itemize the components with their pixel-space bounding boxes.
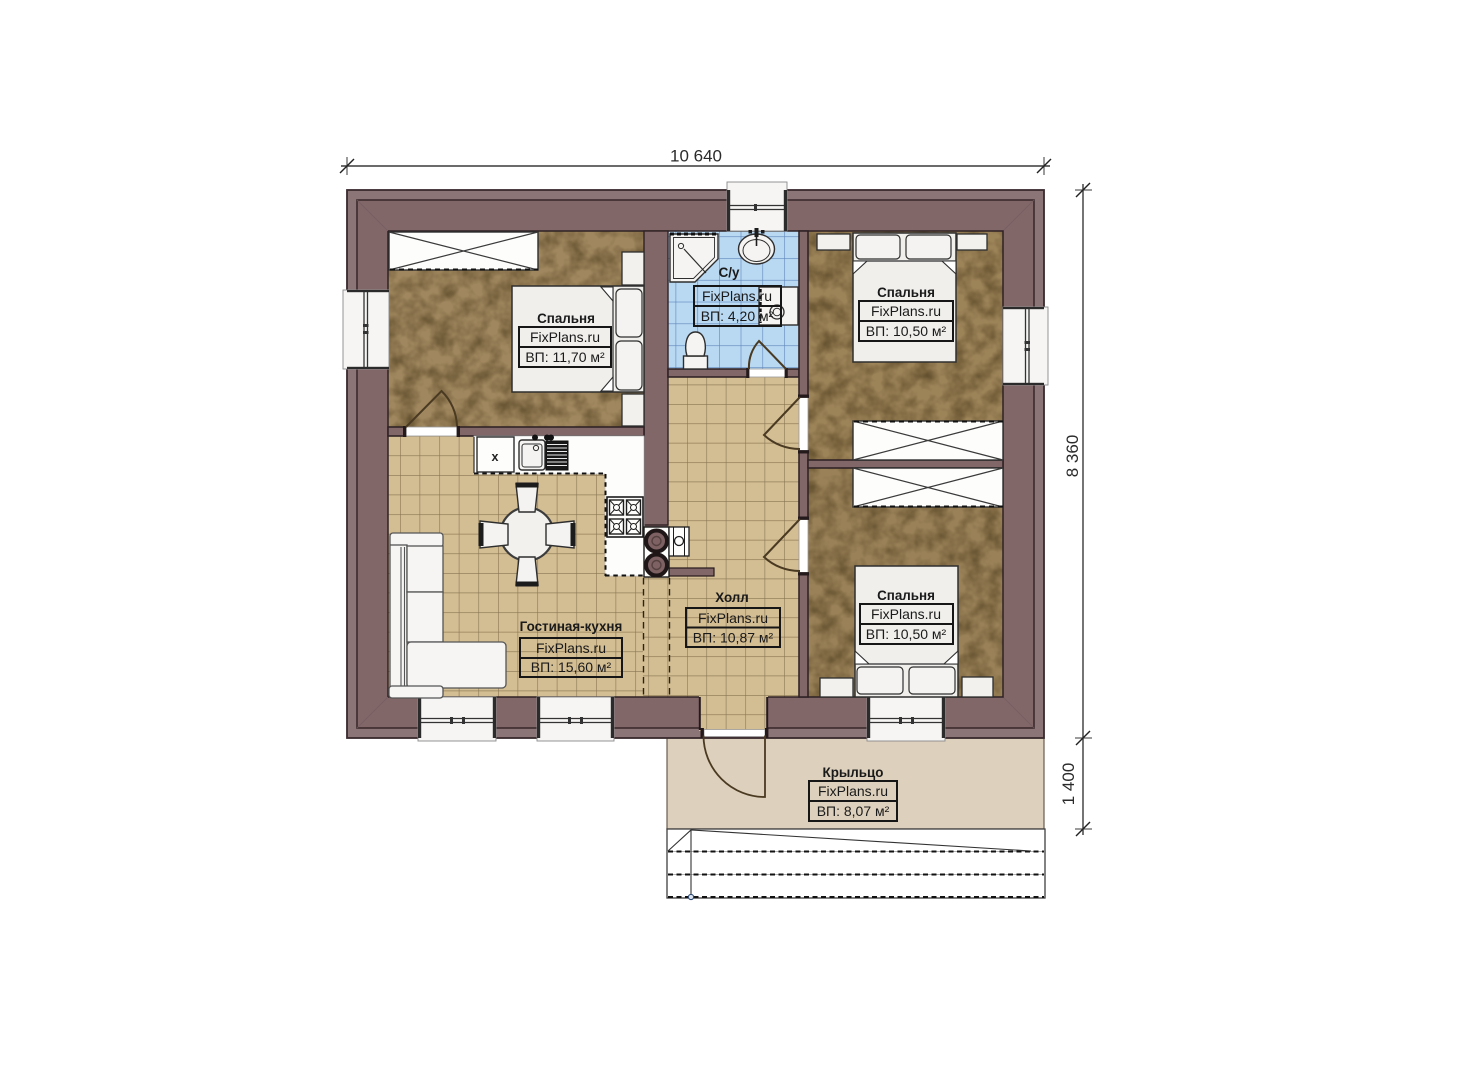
svg-text:ВП: 10,87 м²: ВП: 10,87 м² [693, 630, 774, 646]
svg-text:ВП: 15,60 м²: ВП: 15,60 м² [531, 659, 612, 675]
svg-text:FixPlans.ru: FixPlans.ru [871, 303, 941, 319]
svg-text:FixPlans.ru: FixPlans.ru [871, 606, 941, 622]
svg-text:Холл: Холл [715, 590, 749, 605]
svg-text:ВП: 11,70 м²: ВП: 11,70 м² [525, 349, 605, 365]
svg-text:FixPlans.ru: FixPlans.ru [818, 783, 888, 799]
svg-text:FixPlans.ru: FixPlans.ru [698, 610, 768, 626]
svg-text:ВП: 10,50 м²: ВП: 10,50 м² [866, 626, 947, 642]
svg-text:FixPlans.ru: FixPlans.ru [530, 329, 600, 345]
svg-text:FixPlans.ru: FixPlans.ru [702, 288, 772, 304]
svg-text:Спальня: Спальня [877, 285, 935, 300]
svg-text:Спальня: Спальня [877, 588, 935, 603]
svg-text:x: x [492, 450, 499, 464]
svg-text:ВП: 4,20 м²: ВП: 4,20 м² [701, 308, 774, 324]
svg-text:Гостиная-кухня: Гостиная-кухня [520, 619, 623, 634]
svg-text:FixPlans.ru: FixPlans.ru [536, 640, 606, 656]
svg-text:Крыльцо: Крыльцо [823, 765, 884, 780]
svg-text:С/у: С/у [719, 265, 740, 280]
svg-text:Спальня: Спальня [537, 311, 595, 326]
svg-text:10 640: 10 640 [670, 147, 722, 166]
svg-text:1 400: 1 400 [1059, 763, 1078, 806]
svg-text:ВП: 10,50 м²: ВП: 10,50 м² [866, 323, 947, 339]
svg-text:8 360: 8 360 [1063, 435, 1082, 478]
svg-text:ВП: 8,07 м²: ВП: 8,07 м² [817, 803, 890, 819]
